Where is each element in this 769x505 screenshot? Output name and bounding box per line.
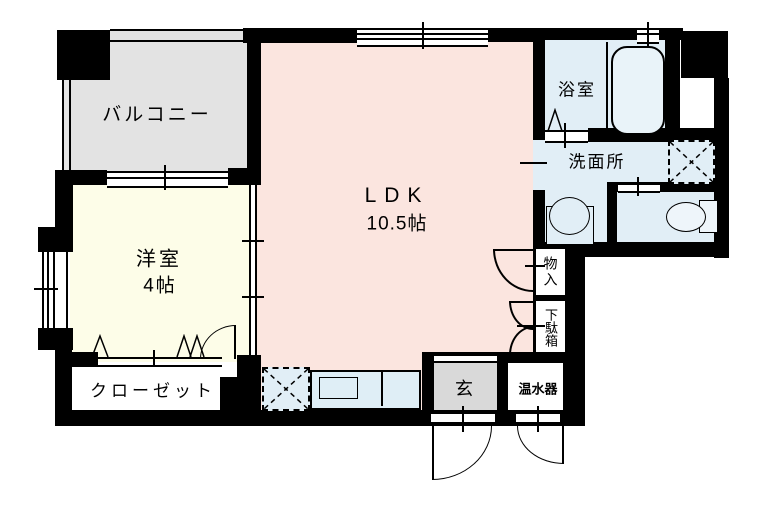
bath-divider-line xyxy=(606,42,608,130)
ldk-size-label: 10.5帖 xyxy=(367,209,428,236)
wall xyxy=(681,31,728,78)
wall xyxy=(228,168,261,185)
ldk-label: LDK xyxy=(365,184,430,208)
bathroom-label: 浴室 xyxy=(558,76,596,101)
balcony-rail-line xyxy=(62,78,64,174)
water-heater-label: 温水器 xyxy=(518,379,557,398)
door-tick xyxy=(242,296,264,298)
wall xyxy=(533,190,545,244)
bay-window-line xyxy=(42,250,44,330)
washroom-label: 洗面所 xyxy=(569,148,626,173)
wall xyxy=(55,170,107,185)
wall xyxy=(533,40,545,140)
door-tick xyxy=(242,240,264,242)
wall xyxy=(57,30,110,80)
wall xyxy=(665,40,680,130)
door-tick xyxy=(525,265,545,267)
wall xyxy=(243,28,357,43)
western-room-label: 洋室 xyxy=(136,243,182,272)
door-tick xyxy=(517,325,545,327)
toilet-bowl xyxy=(666,202,706,232)
window-tick xyxy=(647,22,649,46)
folding-door-icon xyxy=(546,108,564,132)
shoe-cabinet: 下駄箱 xyxy=(534,299,567,356)
storage-cabinet: 物入 xyxy=(534,247,567,297)
bay-window-line xyxy=(66,250,68,330)
entrance-step-sill xyxy=(430,354,497,363)
door-tick xyxy=(564,123,566,148)
kitchen-counter-divider xyxy=(381,370,383,406)
floor-plan: 物入 下駄箱 xyxy=(0,0,769,505)
wall xyxy=(38,328,73,350)
wall xyxy=(220,377,237,410)
window-tick xyxy=(34,288,58,290)
balcony-window xyxy=(107,171,228,188)
balcony-label: バルコニー xyxy=(102,100,212,127)
wall xyxy=(237,355,261,412)
kitchen-sink xyxy=(319,377,358,399)
door-tick xyxy=(637,177,639,196)
toilet-door-sill xyxy=(618,183,660,193)
wall xyxy=(247,43,261,173)
sliding-door-line xyxy=(249,185,251,357)
folding-door-icon xyxy=(90,334,110,358)
entrance-door-arc xyxy=(432,426,492,480)
sliding-door-line xyxy=(255,185,257,357)
balcony-rail-line xyxy=(110,40,247,42)
bay-window-line xyxy=(47,250,49,330)
refrigerator-space-icon xyxy=(262,367,310,411)
wall xyxy=(422,352,434,414)
bay-window-line xyxy=(53,250,55,330)
western-room-size-label: 4帖 xyxy=(143,271,177,298)
wall xyxy=(497,363,508,414)
wall xyxy=(38,227,73,252)
closet-label: クローゼット xyxy=(90,377,216,402)
window-tick xyxy=(164,165,166,190)
door-tick xyxy=(153,350,155,367)
sink-basin xyxy=(549,197,590,235)
wall xyxy=(55,410,585,426)
bathtub xyxy=(611,46,665,135)
shoe-cabinet-label: 下駄箱 xyxy=(541,308,560,347)
wall xyxy=(659,28,683,40)
wall xyxy=(607,182,617,244)
entrance-label: 玄 xyxy=(455,375,473,401)
window-tick xyxy=(422,22,424,49)
wall xyxy=(545,28,637,40)
door-tick xyxy=(520,162,547,164)
balcony-rail-line xyxy=(110,29,247,31)
balcony-rail-line xyxy=(69,78,71,174)
washing-machine-space-icon xyxy=(668,140,715,184)
storage-label: 物入 xyxy=(541,256,561,288)
closet-front-line xyxy=(98,365,222,367)
water-heater-door-arc xyxy=(517,426,564,464)
